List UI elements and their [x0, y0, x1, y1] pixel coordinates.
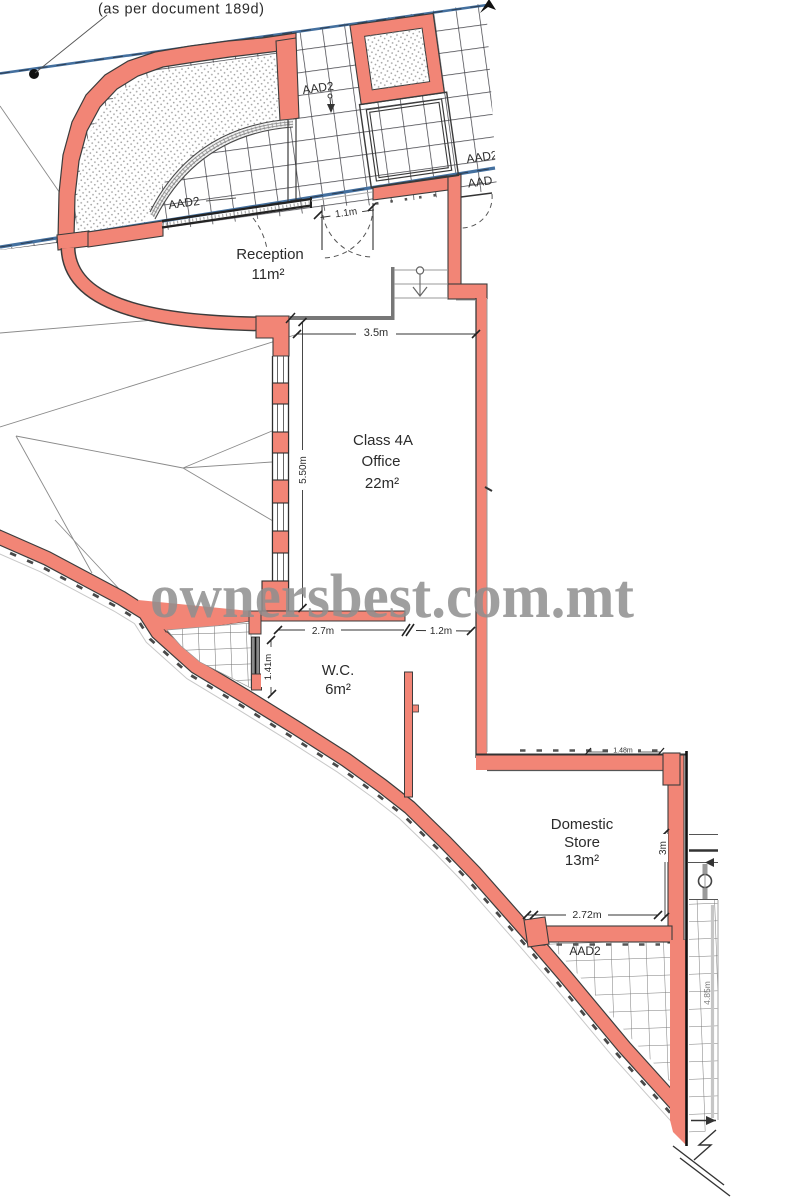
svg-text:2.72m: 2.72m [572, 909, 601, 921]
svg-text:W.C.: W.C. [322, 662, 355, 679]
svg-text:AAD2: AAD2 [569, 944, 601, 958]
svg-text:1.48m: 1.48m [613, 748, 633, 755]
svg-text:4.85m: 4.85m [702, 981, 712, 1005]
svg-text:Domestic: Domestic [551, 816, 614, 833]
svg-text:5.50m: 5.50m [298, 456, 309, 484]
svg-text:6m²: 6m² [325, 681, 351, 698]
svg-text:(as per document 189d): (as per document 189d) [98, 2, 264, 18]
svg-text:Class 4A: Class 4A [353, 432, 413, 449]
svg-text:ownersbest.com.mt: ownersbest.com.mt [150, 563, 634, 631]
svg-text:Store: Store [564, 834, 600, 851]
svg-text:Office: Office [362, 453, 401, 470]
svg-text:1.41m: 1.41m [263, 654, 274, 680]
svg-text:Reception: Reception [236, 246, 304, 263]
svg-text:11m²: 11m² [251, 266, 284, 283]
svg-text:3.5m: 3.5m [364, 327, 388, 339]
svg-text:22m²: 22m² [365, 475, 399, 492]
svg-text:13m²: 13m² [565, 852, 599, 869]
svg-text:3m: 3m [658, 841, 669, 855]
